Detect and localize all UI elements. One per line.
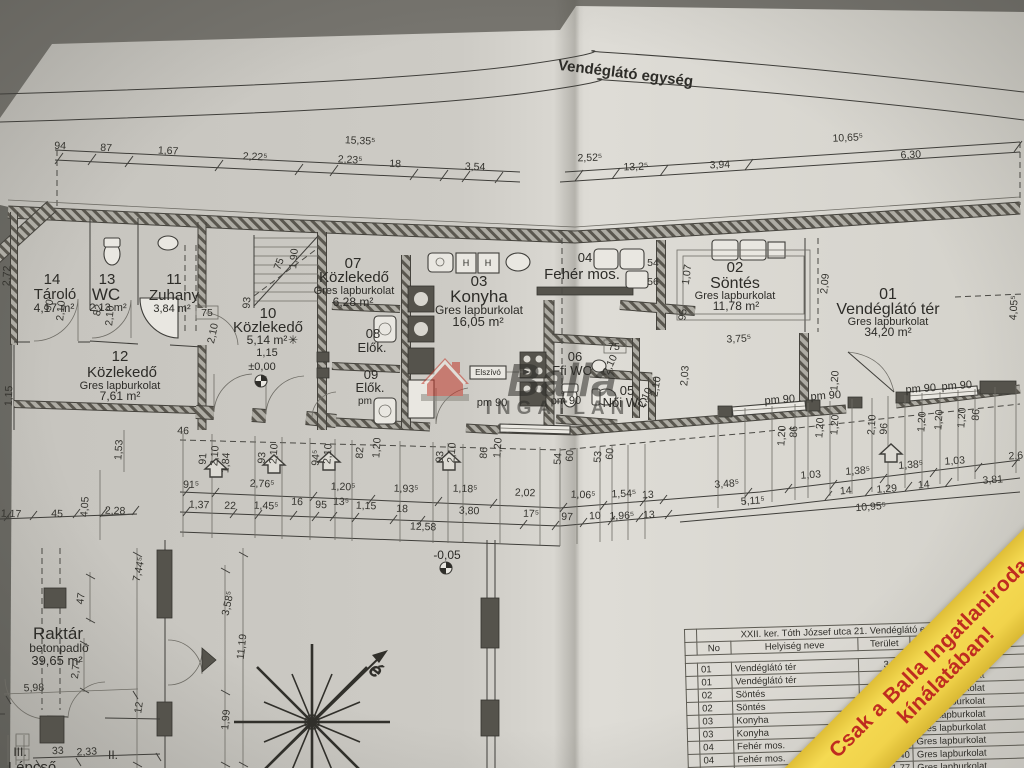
svg-text:13: 13 — [642, 489, 654, 501]
svg-text:91⁵: 91⁵ — [183, 479, 199, 492]
dim: 13,2⁵ — [623, 161, 648, 174]
table-corner-cell — [684, 629, 696, 642]
dim: 87 — [100, 142, 112, 155]
dim: 3,54 — [465, 161, 486, 174]
svg-text:2,6: 2,6 — [1008, 450, 1024, 463]
svg-text:2,77: 2,77 — [69, 658, 83, 680]
svg-text:95: 95 — [315, 499, 327, 511]
svg-text:54: 54 — [552, 452, 565, 465]
svg-text:6,28 m²: 6,28 m² — [333, 295, 374, 309]
svg-text:3,75⁵: 3,75⁵ — [726, 332, 751, 345]
svg-text:1,38⁵: 1,38⁵ — [898, 458, 924, 472]
svg-text:1,20⁵: 1,20⁵ — [331, 481, 356, 494]
svg-text:Fehér mos.: Fehér mos. — [544, 266, 620, 283]
svg-text:2,10: 2,10 — [267, 443, 280, 464]
svg-text:53: 53 — [592, 450, 605, 463]
level-minus-label: -0,05 — [433, 548, 461, 562]
svg-text:1,20: 1,20 — [915, 411, 928, 432]
svg-text:2,09: 2,09 — [818, 273, 832, 295]
svg-text:Elők.: Elők. — [356, 380, 385, 395]
svg-text:13: 13 — [643, 509, 655, 521]
svg-text:18: 18 — [396, 503, 408, 515]
svg-text:5,98: 5,98 — [23, 682, 44, 695]
level-zero-label: ±0,00 — [248, 361, 275, 373]
dim: 2,23⁵ — [337, 153, 362, 166]
svg-text:1,29: 1,29 — [876, 482, 897, 495]
svg-text:11: 11 — [166, 271, 182, 288]
svg-text:2,76⁵: 2,76⁵ — [250, 478, 275, 491]
svg-text:46: 46 — [177, 425, 189, 438]
hood-h-label: H — [485, 258, 492, 268]
svg-text:1,17: 1,17 — [1, 508, 22, 521]
dim: 18 — [389, 158, 401, 171]
svg-text:1,20: 1,20 — [932, 409, 945, 430]
svg-text:2,10: 2,10 — [321, 443, 334, 464]
svg-text:1,20: 1,20 — [828, 370, 841, 391]
svg-text:12: 12 — [112, 348, 129, 365]
svg-text:5,14 m²: 5,14 m² — [247, 333, 288, 347]
floorplan-photo: Vendéglátó egység 15,35⁵ 10,65⁵ 94 87 1,… — [0, 0, 1024, 768]
svg-text:2,10: 2,10 — [865, 414, 878, 435]
svg-text:33: 33 — [52, 745, 64, 758]
section-ii-label: II. — [108, 748, 118, 762]
col-no: No — [697, 641, 731, 655]
svg-text:97: 97 — [561, 511, 573, 523]
svg-text:11,78 m²: 11,78 m² — [713, 299, 759, 313]
svg-text:08: 08 — [366, 326, 380, 341]
svg-text:1,90: 1,90 — [287, 248, 301, 270]
svg-text:04: 04 — [578, 250, 592, 265]
svg-text:Közlekedő: Közlekedő — [319, 269, 389, 286]
svg-text:Elők.: Elők. — [358, 340, 387, 355]
svg-text:2,03: 2,03 — [678, 365, 691, 386]
svg-text:2,10: 2,10 — [103, 305, 117, 327]
svg-text:1,15: 1,15 — [3, 385, 16, 406]
svg-text:5,11⁵: 5,11⁵ — [740, 494, 765, 508]
svg-text:16,05 m²: 16,05 m² — [452, 314, 504, 329]
svg-text:2,33: 2,33 — [76, 745, 97, 758]
svg-text:12,58: 12,58 — [410, 521, 437, 534]
svg-text:13⁵: 13⁵ — [333, 496, 349, 509]
svg-text:86: 86 — [788, 425, 801, 438]
elszivo-label: Elszívó — [475, 368, 501, 377]
pm90-label: pm 90 — [941, 379, 972, 393]
svg-text:86: 86 — [478, 446, 491, 459]
svg-text:1,20: 1,20 — [370, 437, 383, 458]
svg-text:95: 95 — [676, 308, 689, 321]
pm90-label: pm 90 — [764, 393, 795, 407]
svg-text:pm: pm — [358, 396, 372, 407]
svg-text:10,95⁵: 10,95⁵ — [855, 500, 886, 514]
svg-text:✳: ✳ — [288, 333, 298, 347]
svg-text:2,02: 2,02 — [515, 487, 536, 500]
svg-text:2,28: 2,28 — [105, 505, 126, 518]
svg-text:1,84: 1,84 — [219, 452, 232, 473]
svg-text:Zuhany: Zuhany — [149, 287, 200, 304]
svg-text:1,03: 1,03 — [800, 468, 821, 481]
svg-text:1,06⁵: 1,06⁵ — [571, 489, 596, 502]
svg-text:2,10: 2,10 — [54, 300, 68, 322]
room-lepcso-label: Lépcső — [8, 759, 56, 768]
svg-text:10: 10 — [589, 510, 601, 522]
svg-text:1,54⁵: 1,54⁵ — [611, 488, 636, 501]
svg-text:1,03: 1,03 — [944, 454, 965, 467]
svg-text:45: 45 — [51, 508, 63, 520]
svg-text:2,10: 2,10 — [445, 442, 458, 463]
dim-total-right: 10,65⁵ — [832, 131, 863, 145]
svg-text:1,20: 1,20 — [491, 437, 504, 458]
svg-text:54: 54 — [647, 257, 659, 269]
svg-text:60: 60 — [564, 449, 577, 462]
svg-text:4,05: 4,05 — [78, 496, 91, 517]
svg-text:2,72: 2,72 — [1, 265, 14, 286]
svg-text:12: 12 — [132, 701, 146, 714]
svg-text:3,81: 3,81 — [982, 473, 1003, 486]
svg-text:82: 82 — [354, 446, 367, 459]
svg-text:1,20: 1,20 — [955, 407, 968, 428]
svg-text:56: 56 — [647, 276, 659, 288]
dim: 1,67 — [158, 144, 179, 157]
dim-total-left: 15,35⁵ — [345, 134, 376, 148]
svg-text:3,48⁵: 3,48⁵ — [714, 477, 740, 491]
svg-text:1,53: 1,53 — [112, 439, 125, 460]
svg-text:22: 22 — [224, 500, 236, 512]
svg-text:1,38⁵: 1,38⁵ — [845, 464, 871, 478]
svg-text:Közlekedő: Közlekedő — [87, 364, 157, 381]
svg-text:1,18⁵: 1,18⁵ — [453, 483, 478, 496]
svg-text:75: 75 — [608, 341, 620, 353]
svg-text:3,80: 3,80 — [459, 505, 480, 518]
svg-text:91: 91 — [197, 452, 210, 465]
svg-text:1,07: 1,07 — [680, 264, 694, 286]
svg-text:4,05⁵: 4,05⁵ — [1007, 295, 1021, 321]
svg-text:93: 93 — [241, 296, 254, 309]
svg-text:02: 02 — [727, 259, 744, 276]
svg-text:1,20: 1,20 — [813, 417, 826, 438]
svg-text:1,20: 1,20 — [828, 414, 841, 435]
svg-text:1,45⁵: 1,45⁵ — [254, 500, 279, 513]
svg-text:1,37: 1,37 — [189, 499, 210, 512]
svg-text:1,99: 1,99 — [219, 709, 233, 731]
svg-text:14: 14 — [840, 485, 853, 498]
table-corner-cell — [685, 642, 697, 655]
svg-text:14: 14 — [918, 479, 931, 492]
svg-text:1,20: 1,20 — [775, 425, 788, 446]
svg-text:47: 47 — [74, 592, 88, 605]
dim: 3,94 — [709, 159, 730, 172]
dim: 94 — [54, 140, 66, 153]
pm90-label: pm 90 — [905, 382, 936, 396]
svg-text:75: 75 — [201, 307, 213, 319]
logo-sub-text: INGATLAN — [486, 398, 631, 419]
svg-text:16: 16 — [291, 496, 303, 508]
logo-house-shape — [427, 380, 463, 396]
svg-text:17⁵: 17⁵ — [523, 508, 539, 521]
dim: 6,30 — [900, 148, 921, 161]
dim: 2,52⁵ — [577, 152, 602, 165]
svg-text:60: 60 — [604, 447, 617, 460]
svg-text:1,96⁵: 1,96⁵ — [609, 510, 634, 523]
hood-h-label: H — [463, 258, 470, 268]
svg-text:1,15: 1,15 — [356, 500, 377, 513]
svg-text:96: 96 — [878, 422, 891, 435]
svg-text:1,93⁵: 1,93⁵ — [394, 483, 419, 496]
svg-text:1,15: 1,15 — [256, 347, 277, 359]
svg-text:3,84 m²: 3,84 m² — [153, 303, 191, 315]
dim: 2,22⁵ — [242, 150, 267, 163]
svg-text:7,61 m²: 7,61 m² — [100, 389, 141, 403]
svg-text:86: 86 — [970, 408, 983, 421]
svg-text:34,20 m²: 34,20 m² — [864, 325, 911, 339]
section-iii-label: III. — [13, 745, 26, 759]
